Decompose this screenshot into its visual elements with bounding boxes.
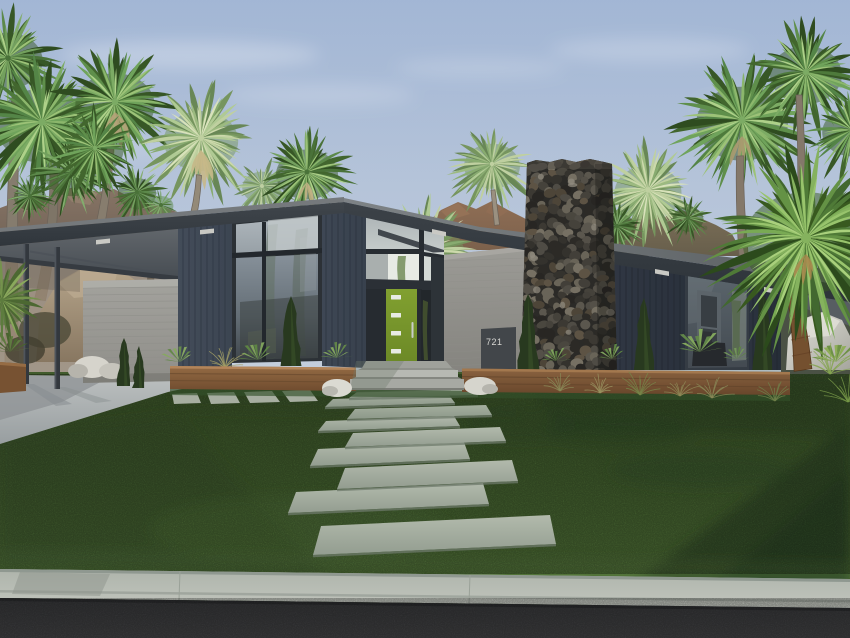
svg-text:721: 721 — [486, 337, 503, 347]
